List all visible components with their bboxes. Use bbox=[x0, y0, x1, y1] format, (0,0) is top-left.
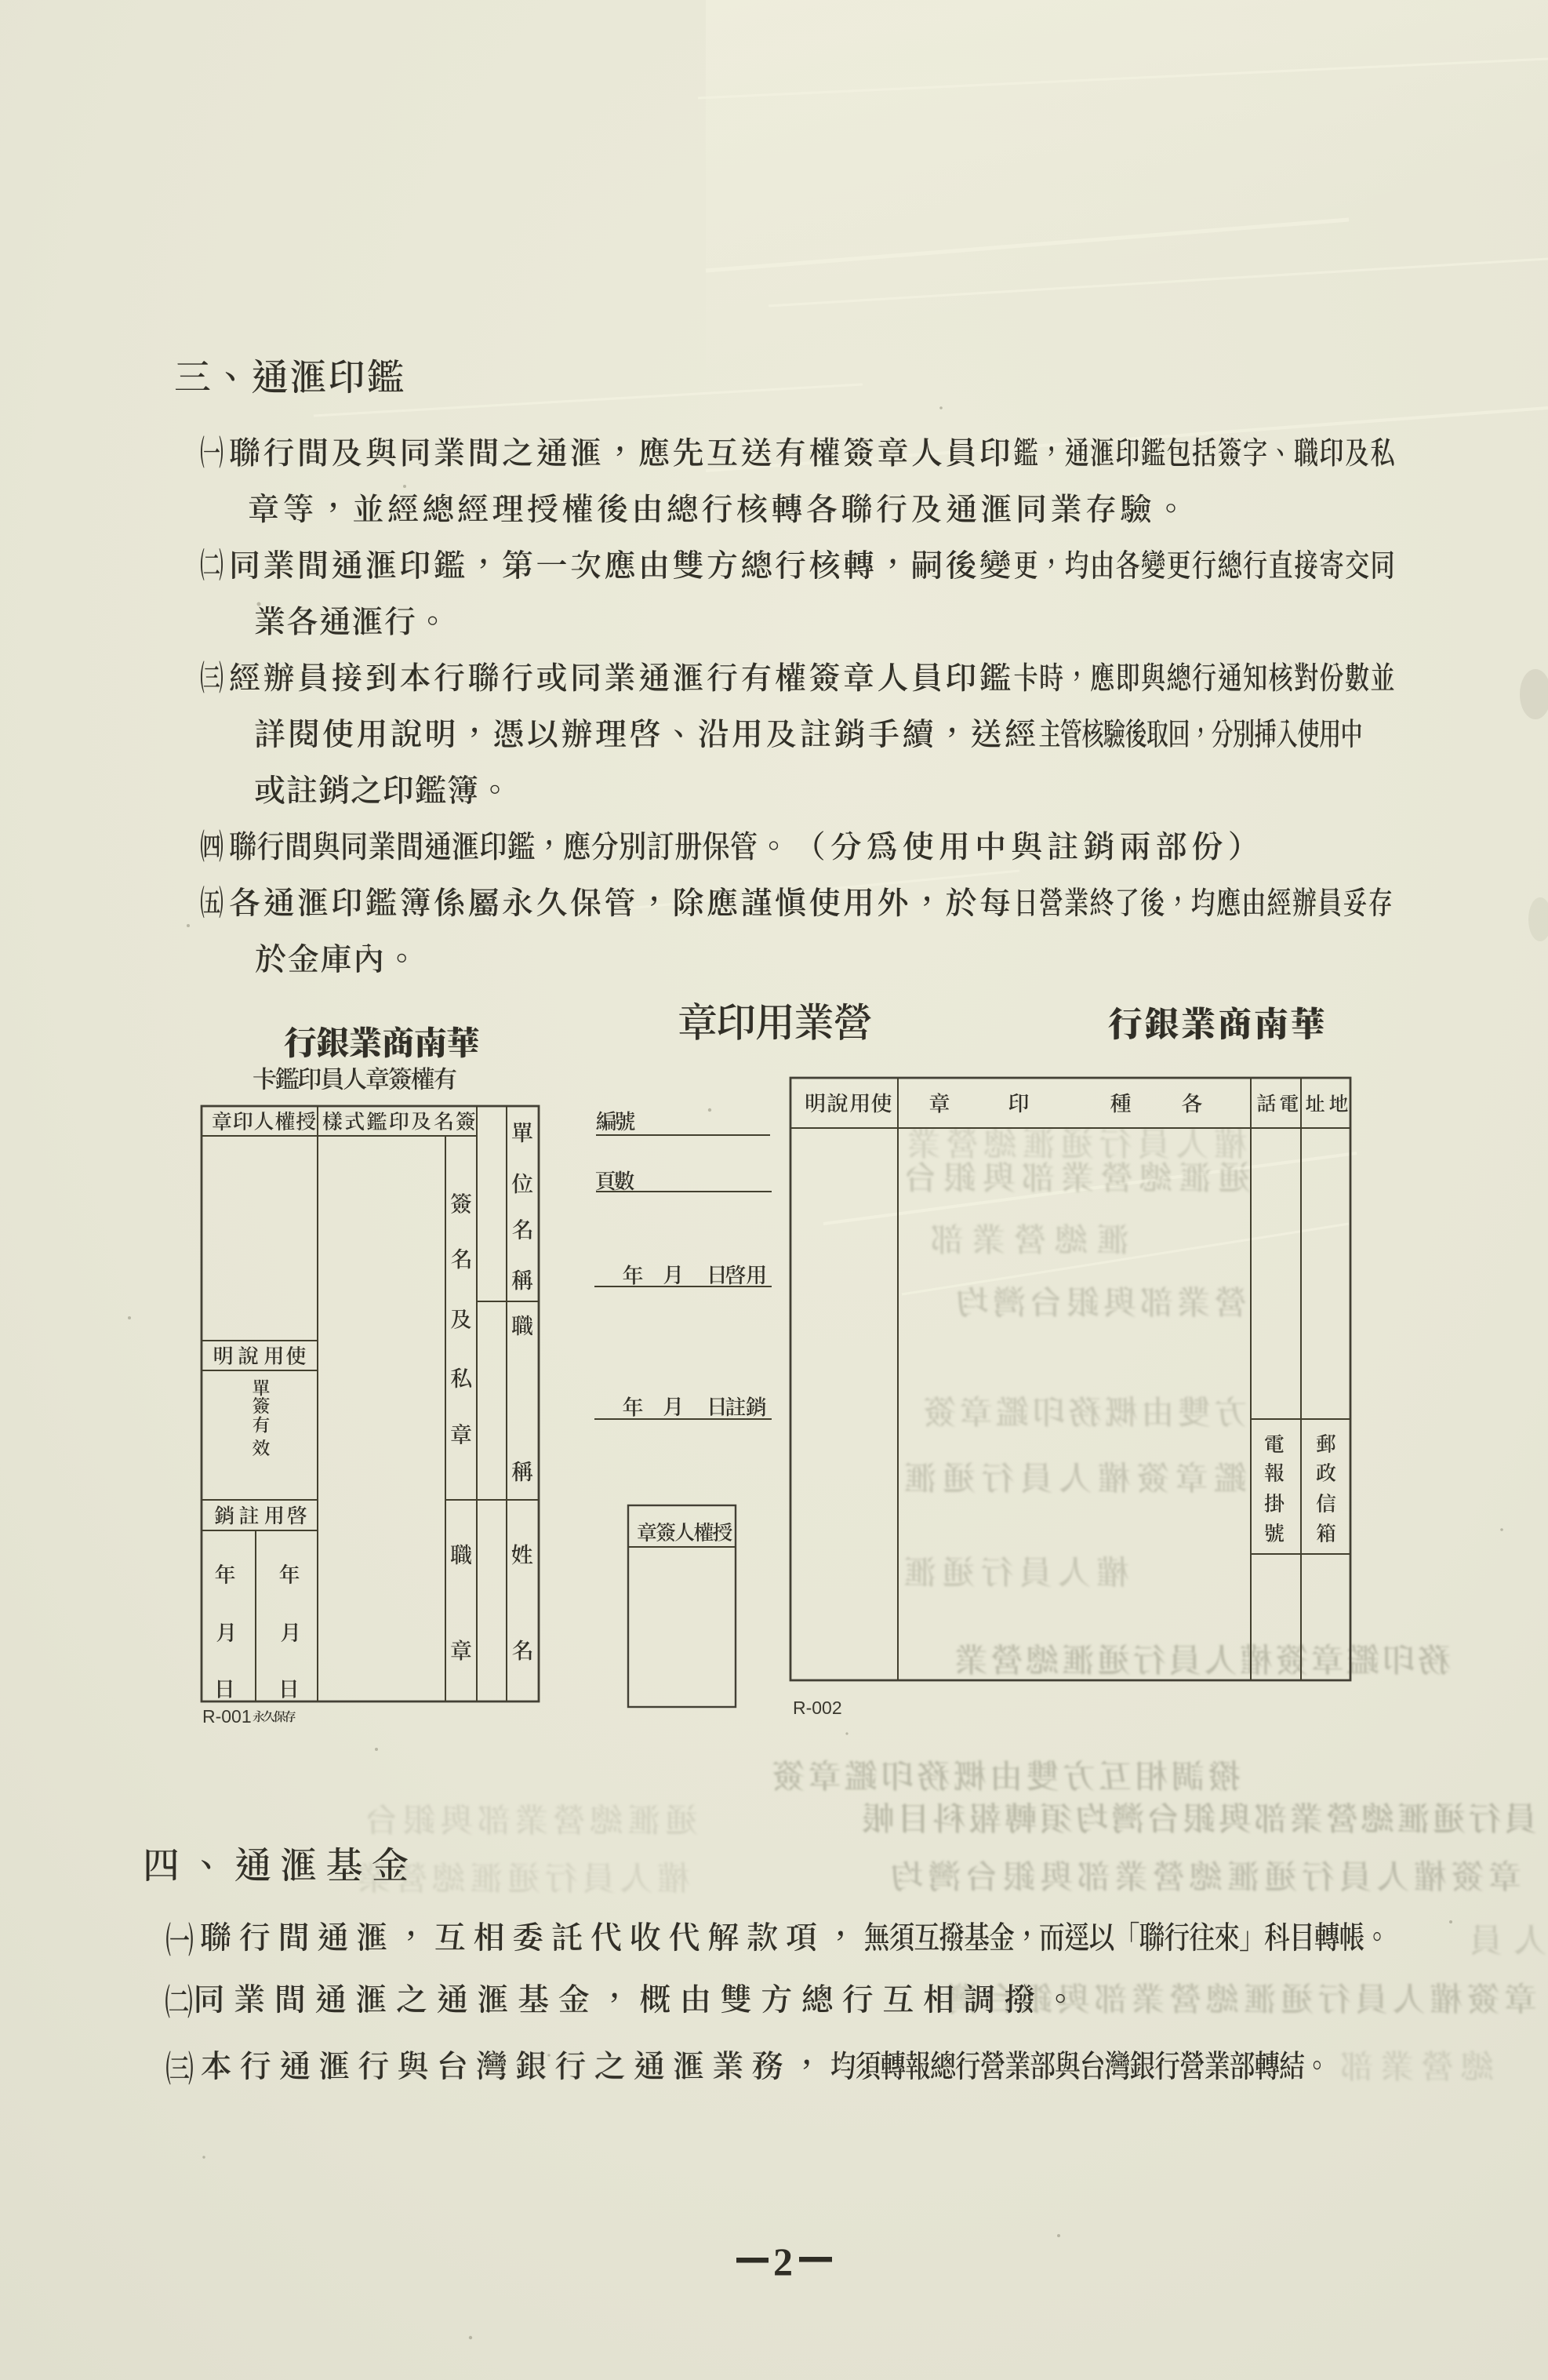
svg-text:2: 2 bbox=[773, 2240, 793, 2284]
svg-text:R-001: R-001 bbox=[202, 1706, 252, 1727]
svg-text:R-002: R-002 bbox=[793, 1698, 842, 1718]
